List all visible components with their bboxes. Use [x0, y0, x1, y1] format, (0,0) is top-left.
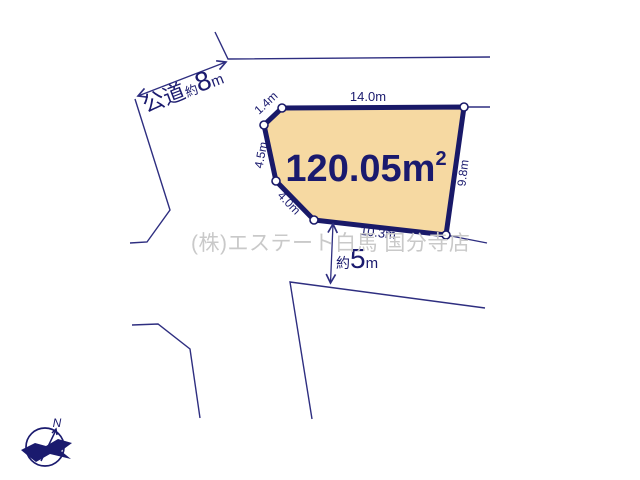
edge-label-right: 9.8m — [454, 159, 471, 187]
plot-area-label: 120.05m2 — [285, 148, 446, 190]
site-plan-canvas: 14.0m 1.4m 4.5m 4.0m 10.3m 9.8m 120.05m2… — [0, 0, 640, 480]
plot-vertex-dot — [460, 103, 468, 111]
plot-area-unit: m — [402, 148, 436, 190]
edge-label-left: 4.5m — [252, 141, 271, 170]
public-road-label: 公道約8m — [137, 60, 227, 118]
plot-vertex-dot — [278, 104, 286, 112]
southwest-block-corner-line — [132, 324, 200, 418]
plot-area-exponent: 2 — [435, 148, 446, 170]
south-road-far-boundary-line — [290, 282, 485, 419]
north-road-far-boundary-line — [215, 32, 490, 59]
land-plot-diagram: 14.0m 1.4m 4.5m 4.0m 10.3m 9.8m 120.05m2… — [0, 0, 640, 480]
south-road-unit: m — [366, 255, 379, 272]
edge-label-top: 14.0m — [350, 89, 386, 104]
plot-vertex-dot — [272, 177, 280, 185]
compass-north-label: N — [53, 416, 62, 430]
north-compass-icon: N — [21, 416, 72, 466]
plot-vertex-dot — [260, 121, 268, 129]
public-road-name: 公道 — [139, 79, 189, 118]
plot-area-value: 120.05 — [285, 148, 401, 190]
south-road-approx: 約 — [336, 255, 350, 271]
west-road-near-boundary-line — [130, 99, 170, 243]
plot-vertex-dot — [310, 216, 318, 224]
agency-watermark: (株)エステート白馬 国分寺店 — [191, 232, 470, 255]
